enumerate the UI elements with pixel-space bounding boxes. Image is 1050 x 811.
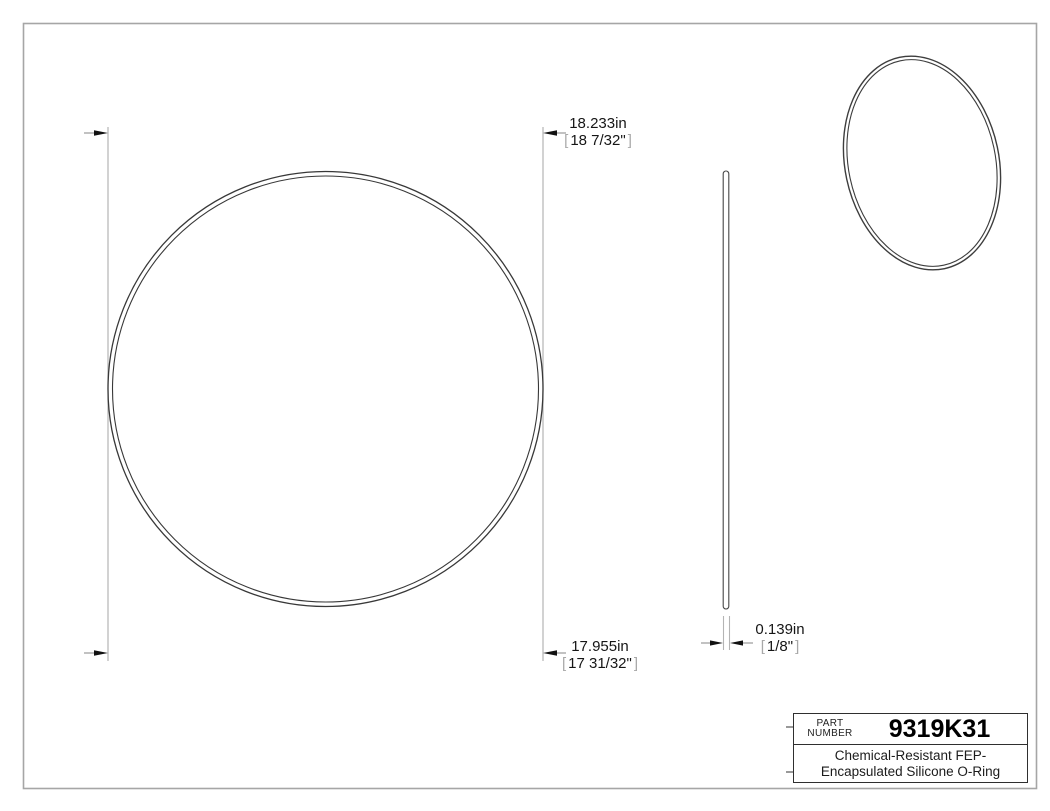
od-dimension-arrows bbox=[84, 130, 566, 136]
side-view-profile bbox=[723, 171, 729, 609]
od-dimension-label: 18.233in [18 7/32"] bbox=[538, 115, 658, 149]
id-decimal-value: 17.955in bbox=[540, 638, 660, 655]
isometric-view bbox=[824, 41, 1020, 284]
arrow-right-icon bbox=[94, 130, 108, 136]
bracket-open: [ bbox=[560, 655, 568, 672]
bracket-close: ] bbox=[632, 655, 640, 672]
technical-drawing-page: 18.233in [18 7/32"] 17.955in [17 31/32"]… bbox=[0, 0, 1050, 811]
bracket-open: [ bbox=[759, 638, 767, 655]
part-description-line2: Encapsulated Silicone O-Ring bbox=[794, 764, 1027, 780]
drawing-canvas bbox=[0, 0, 1050, 811]
part-number: 9319K31 bbox=[866, 715, 1027, 744]
title-block: PART NUMBER 9319K31 Chemical-Resistant F… bbox=[793, 713, 1028, 783]
bracket-close: ] bbox=[626, 132, 634, 149]
arrow-right-icon bbox=[94, 650, 108, 656]
front-view-inner-circle bbox=[113, 176, 539, 602]
page-border bbox=[24, 24, 1037, 789]
od-fraction-value: [18 7/32"] bbox=[538, 132, 658, 149]
cs-decimal-value: 0.139in bbox=[730, 621, 830, 638]
front-view-outer-circle bbox=[108, 172, 543, 607]
bracket-close: ] bbox=[793, 638, 801, 655]
id-fraction-value: [17 31/32"] bbox=[540, 655, 660, 672]
part-description-line1: Chemical-Resistant FEP- bbox=[794, 748, 1027, 764]
id-dimension-label: 17.955in [17 31/32"] bbox=[540, 638, 660, 672]
isometric-outer-ellipse bbox=[824, 41, 1020, 284]
part-number-label: PART NUMBER bbox=[794, 719, 866, 740]
part-number-row: PART NUMBER 9319K31 bbox=[794, 714, 1027, 745]
isometric-inner-ellipse bbox=[828, 46, 1015, 281]
id-dimension-arrows bbox=[84, 650, 566, 656]
cs-fraction-value: [1/8"] bbox=[730, 638, 830, 655]
cs-dimension-label: 0.139in [1/8"] bbox=[730, 621, 830, 655]
od-decimal-value: 18.233in bbox=[538, 115, 658, 132]
part-description: Chemical-Resistant FEP- Encapsulated Sil… bbox=[794, 745, 1027, 782]
arrow-right-icon bbox=[710, 640, 723, 645]
